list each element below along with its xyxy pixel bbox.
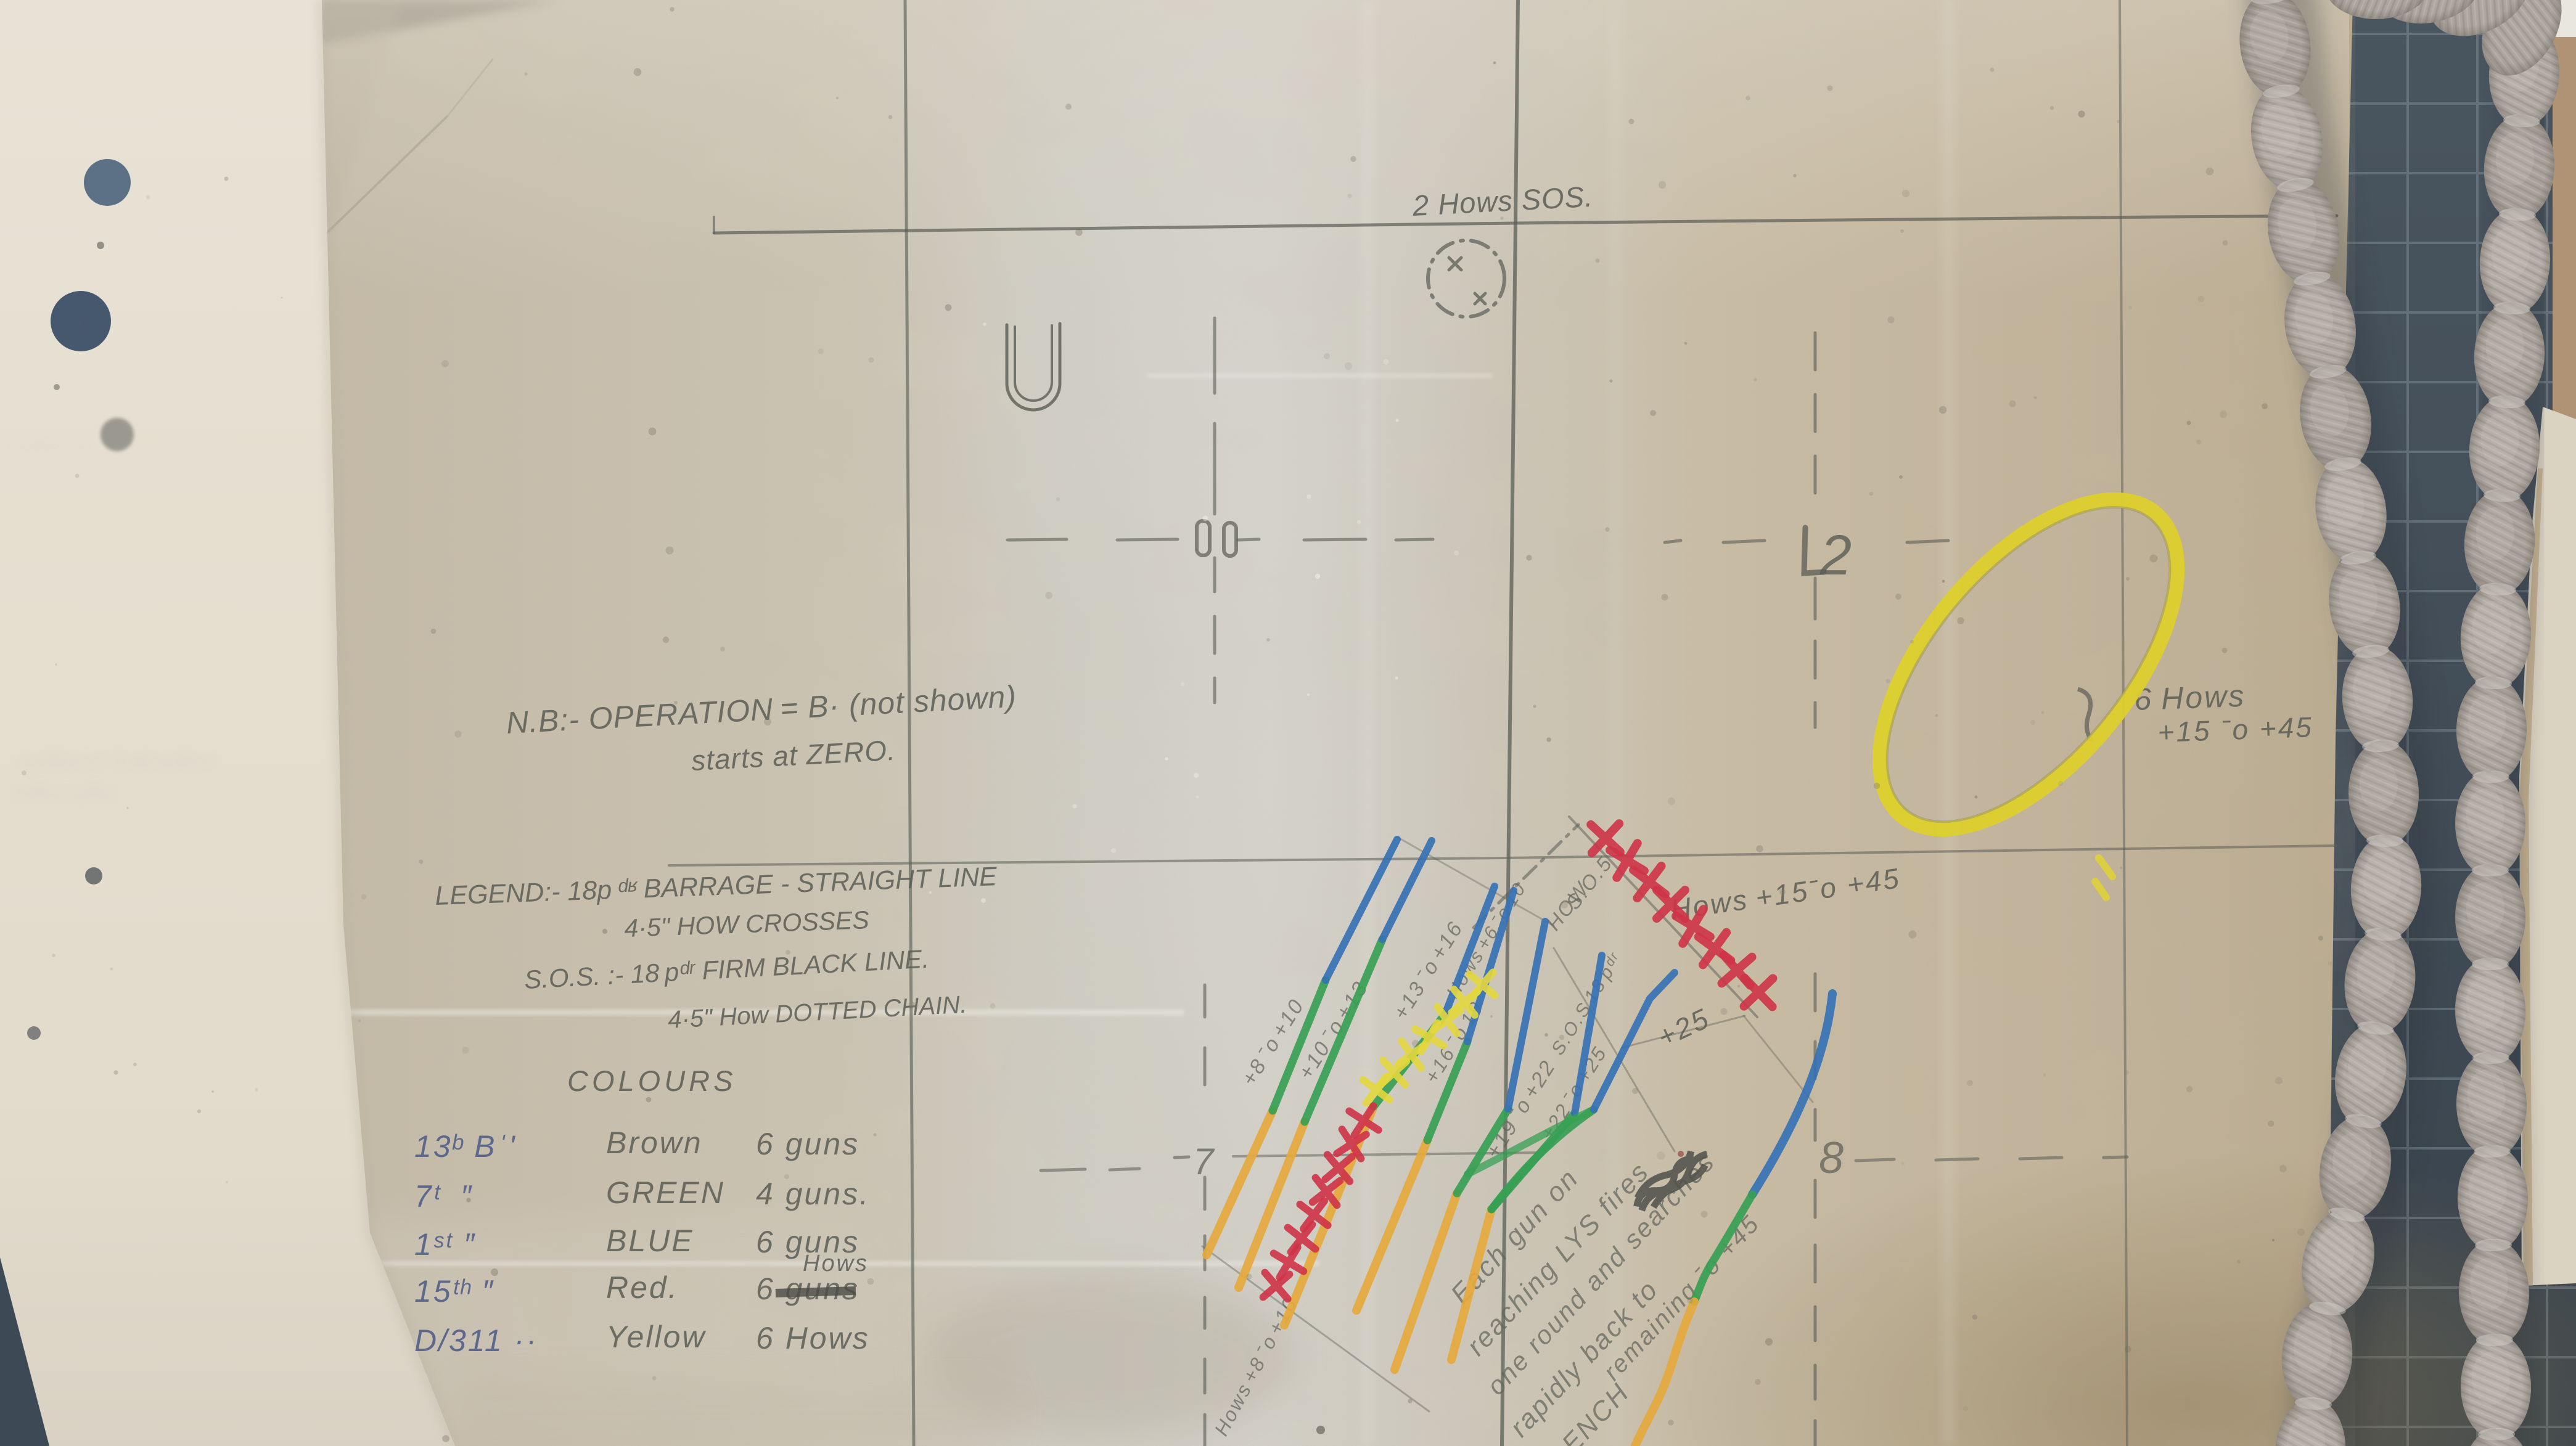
svg-text:nullim ul: nullim ul bbox=[11, 435, 88, 458]
svg-text:Brown: Brown bbox=[606, 1125, 703, 1160]
svg-text:6 guns: 6 guns bbox=[756, 1127, 859, 1161]
svg-text:BLUE: BLUE bbox=[606, 1223, 694, 1258]
svg-text:+15 ˉo +45: +15 ˉo +45 bbox=[2157, 711, 2314, 748]
svg-text:COLOURS: COLOURS bbox=[567, 1064, 736, 1097]
svg-text:7: 7 bbox=[1193, 1141, 1215, 1182]
svg-text:Red.: Red. bbox=[606, 1270, 679, 1305]
svg-text:7ᵗ ″: 7ᵗ ″ bbox=[414, 1179, 474, 1214]
svg-text:Hows: Hows bbox=[803, 1251, 869, 1276]
svg-text:Yellow: Yellow bbox=[606, 1320, 707, 1354]
svg-text:1ˢᵗ ″: 1ˢᵗ ″ bbox=[414, 1227, 476, 1262]
svg-text:2: 2 bbox=[1819, 524, 1852, 587]
svg-text:unilliuml lintlnullim: unilliuml lintlnullim bbox=[17, 748, 215, 775]
svg-text:8: 8 bbox=[1819, 1134, 1844, 1183]
svg-text:4 guns.: 4 guns. bbox=[756, 1177, 870, 1211]
svg-text:6 Hows: 6 Hows bbox=[756, 1321, 870, 1355]
svg-text:D/311 ··: D/311 ·· bbox=[414, 1323, 538, 1358]
svg-text:GREEN: GREEN bbox=[606, 1175, 725, 1210]
svg-text:6 Hows: 6 Hows bbox=[2133, 679, 2246, 717]
svg-text:15ᵗʰ ″: 15ᵗʰ ″ bbox=[414, 1274, 494, 1309]
svg-text:13ᵇ Bˈʹ: 13ᵇ Bˈʹ bbox=[414, 1129, 517, 1164]
svg-text:miliui tullui: miliui tullui bbox=[14, 780, 116, 805]
